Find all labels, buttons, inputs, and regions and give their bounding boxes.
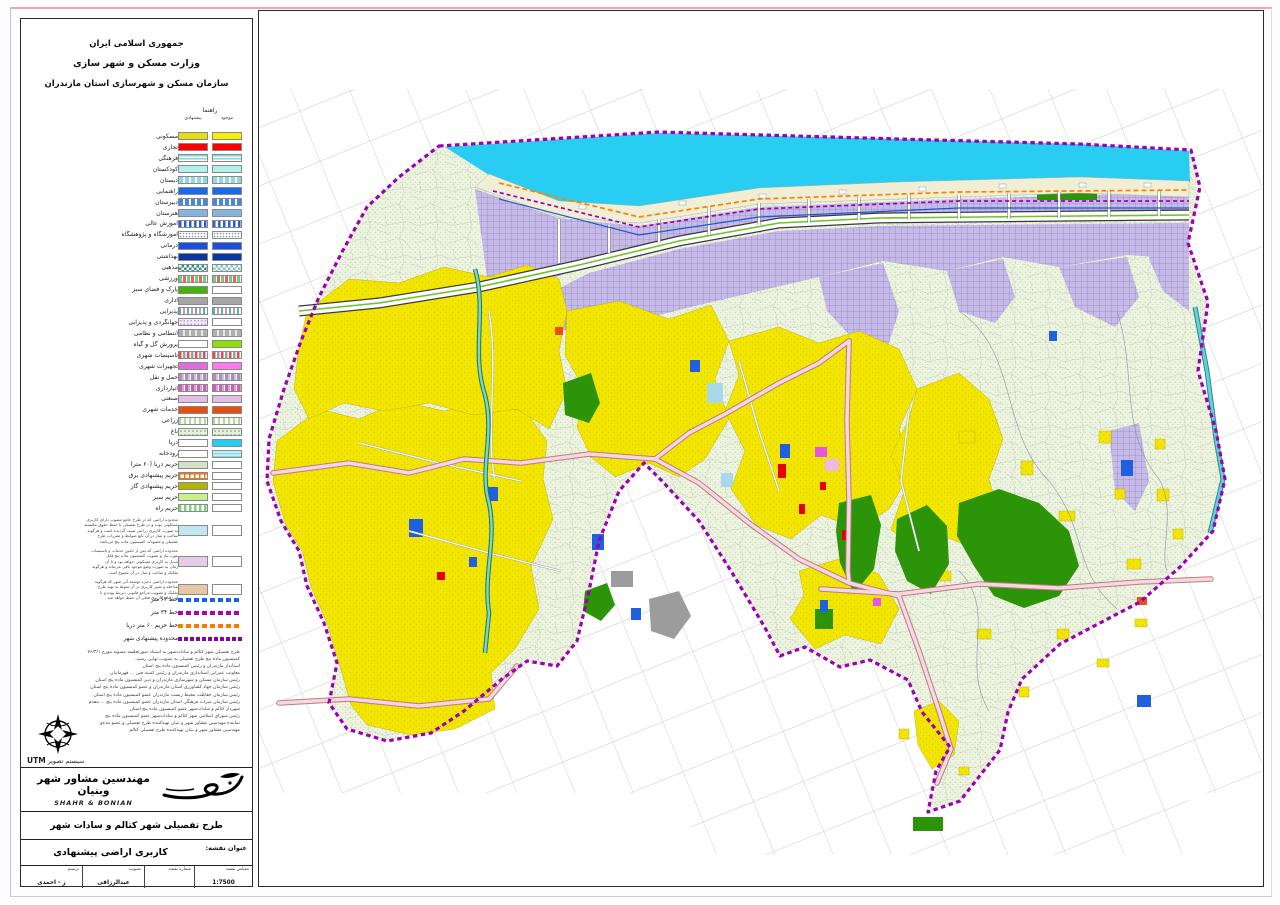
legend-row: مذهبی <box>29 262 242 273</box>
legend-row: تجاری <box>29 142 242 153</box>
info-panel: جمهوری اسلامی ایران وزارت مسکن و شهر ساز… <box>20 18 253 887</box>
legend-label: آموزشگاه و پژوهشگاه <box>29 231 178 238</box>
title-block-cell: تصویبعبدالرزاقی <box>82 866 144 888</box>
legend-label: کودکستان <box>29 166 178 173</box>
firm-names: مهندسین مشاور شهر وبنیان SHAHR & BONIAN <box>27 773 160 807</box>
approval-note-line: شهردار کتالم و سادات‌شهر عضو کمیسیون ماد… <box>29 706 240 713</box>
title-cell-label: شماره نقشه <box>168 867 191 872</box>
legend-label: باغ <box>29 428 178 435</box>
map-panel <box>258 10 1264 887</box>
line-keys: خط ۶۳ مترخط ۳۴ مترخط حریم ۶۰ متر دریامحد… <box>29 593 242 645</box>
approval-note-line: رئیس سازمان جهاد کشاورزی استان مازندران … <box>29 684 240 691</box>
legend-swatch-existing <box>212 340 242 348</box>
title-cell-value: ز - احمدی <box>21 880 82 886</box>
legend-label: حریم راه <box>29 505 178 512</box>
legend-label: ورزشی <box>29 275 178 282</box>
title-cell-value: عبدالرزاقی <box>83 880 144 886</box>
legend-swatch-existing <box>212 318 242 326</box>
legend-label: اداری <box>29 297 178 304</box>
legend-swatch-proposed <box>178 504 208 512</box>
projection-value: UTM <box>27 756 46 765</box>
legend-row: کودکستان <box>29 164 242 175</box>
legend-swatch-proposed <box>178 198 208 206</box>
legend-row: حریم راه <box>29 503 242 514</box>
legend-label: فرهنگی <box>29 155 178 162</box>
title-block-cell: ترسیمز - احمدی <box>21 866 82 888</box>
legend-row: حریم پیشنهادی گاز <box>29 481 242 492</box>
legend-swatch-proposed <box>178 132 208 140</box>
legend-swatch-proposed <box>178 264 208 272</box>
legend-swatch-proposed <box>178 275 208 283</box>
legend-label: حریم پیشنهادی برق <box>29 472 178 479</box>
line-key-sample <box>178 624 242 628</box>
legend-swatch-existing <box>212 461 242 469</box>
legend-swatch-proposed <box>178 406 208 414</box>
legend-label: حریم پیشنهادی گاز <box>29 483 178 490</box>
legend-label: آموزش عالی <box>29 220 178 227</box>
legend-swatch-proposed <box>178 187 208 195</box>
legend-row: رودخانه <box>29 448 242 459</box>
legend-swatch-proposed <box>178 209 208 217</box>
legend-swatch-existing <box>212 362 242 370</box>
approval-note-line: استاندار مازندران و رئیس کمیسیون ماده پن… <box>29 663 240 670</box>
legend-label: جهانگردی و پذیرایی <box>29 319 178 326</box>
legend-swatch-existing <box>212 329 242 337</box>
legend-swatch-proposed <box>178 220 208 228</box>
legend-header: راهنما پیشنهادی موجود <box>178 107 242 121</box>
line-key-label: محدوده پیشنهادی شهر <box>29 636 178 642</box>
title-block-cell: مقیاس نقشه1:7500 <box>194 866 252 888</box>
legend-note-swatch <box>178 556 208 567</box>
line-key-row: خط حریم ۶۰ متر دریا <box>29 619 242 632</box>
legend-row: پذیرایی <box>29 306 242 317</box>
legend-swatch-existing <box>212 417 242 425</box>
legend-label: صنعتی <box>29 395 178 402</box>
line-key-sample <box>178 611 242 615</box>
legend-swatch-existing <box>212 143 242 151</box>
legend-label: مذهبی <box>29 264 178 271</box>
map-title-label: عنوان نقشه: <box>206 844 247 852</box>
legend-row: آموزش عالی <box>29 219 242 230</box>
legend-swatch-proposed <box>178 362 208 370</box>
legend-row: حریم پیشنهادی برق <box>29 470 242 481</box>
legend-swatch-existing <box>212 242 242 250</box>
firm-logo <box>160 769 246 811</box>
legend-label: مسکونی <box>29 133 178 140</box>
legend-row: حمل و نقل <box>29 372 242 383</box>
legend-label: تاسیسات شهری <box>29 352 178 359</box>
legend-swatch-existing <box>212 187 242 195</box>
map-sheet <box>259 11 1262 885</box>
legend-label: حریم سبز <box>29 494 178 501</box>
legend-note-row: محدوده اراضی که پس از تامین خدمات و تاسی… <box>29 548 242 575</box>
title-cell-label: تصویب <box>128 867 141 872</box>
approval-note-line: معاونت عمرانی استانداری مازندران و رئیس … <box>29 670 240 677</box>
legend-row: حریم سبز <box>29 492 242 503</box>
legend-swatch-proposed <box>178 439 208 447</box>
legend-label: دبیرستان <box>29 199 178 206</box>
legend-swatch-existing <box>212 132 242 140</box>
org-line-ministry: وزارت مسکن و شهر سازی <box>27 58 246 69</box>
title-cell-label: مقیاس نقشه <box>226 867 249 872</box>
legend-swatch-proposed <box>178 351 208 359</box>
legend-row: اداری <box>29 295 242 306</box>
legend-row: ورزشی <box>29 273 242 284</box>
legend-col-existing: موجود <box>212 116 242 121</box>
legend-swatch-proposed <box>178 307 208 315</box>
title-cells: مقیاس نقشه1:7500شماره نقشهتصویبعبدالرزاق… <box>21 865 252 888</box>
legend-swatch-proposed <box>178 493 208 501</box>
line-key-row: محدوده پیشنهادی شهر <box>29 632 242 645</box>
legend-notes: محدوده اراضی که در طرح جامع مصوب دارای ک… <box>29 517 242 605</box>
legend-swatch-proposed <box>178 417 208 425</box>
legend-note-swatch-blank <box>212 556 242 567</box>
legend-swatch-proposed <box>178 231 208 239</box>
legend-swatch-existing <box>212 406 242 414</box>
legend-label: رودخانه <box>29 450 178 457</box>
legend-row: آموزشگاه و پژوهشگاه <box>29 229 242 240</box>
legend-row: زراعی <box>29 415 242 426</box>
legend-row: مسکونی <box>29 131 242 142</box>
legend-row: تجهیزات شهری <box>29 361 242 372</box>
legend-swatch-proposed <box>178 482 208 490</box>
project-title: طرح تفصیلی شهر کتالم و سادات شهر <box>21 811 252 839</box>
approval-note-line: رئیس سازمان حفاظت محیط زیست مازندران عضو… <box>29 692 240 699</box>
legend-label: پذیرایی <box>29 308 178 315</box>
org-header: جمهوری اسلامی ایران وزارت مسکن و شهر ساز… <box>27 39 246 89</box>
legend-swatch-proposed <box>178 143 208 151</box>
legend-swatch-existing <box>212 450 242 458</box>
legend-swatch-existing <box>212 373 242 381</box>
legend-swatch-existing <box>212 165 242 173</box>
legend-swatch-existing <box>212 220 242 228</box>
legend-row: خدمات شهری <box>29 404 242 415</box>
legend-swatch-proposed <box>178 297 208 305</box>
line-key-label: خط ۳۴ متر <box>29 610 178 616</box>
legend-row: فرهنگی <box>29 153 242 164</box>
legend-swatch-existing <box>212 384 242 392</box>
line-key-sample <box>178 598 242 602</box>
legend-note-row: محدوده اراضی که در طرح جامع مصوب دارای ک… <box>29 517 242 544</box>
line-key-sample <box>178 637 242 641</box>
org-line-organization: سازمان مسکن و شهرسازی استان مازندران <box>27 79 246 89</box>
legend-note-text: محدوده اراضی که پس از تامین خدمات و تاسی… <box>29 548 178 575</box>
legend-label: دبستان <box>29 177 178 184</box>
legend-swatch-proposed <box>178 384 208 392</box>
approval-note-line: رئیس سازمان میراث فرهنگی استان مازندران … <box>29 699 240 706</box>
line-key-row: خط ۳۴ متر <box>29 606 242 619</box>
legend-label: راهنمایی <box>29 188 178 195</box>
line-key-label: خط حریم ۶۰ متر دریا <box>29 623 178 629</box>
legend-swatch-proposed <box>178 395 208 403</box>
legend-row: جهانگردی و پذیرایی <box>29 317 242 328</box>
line-key-row: خط ۶۳ متر <box>29 593 242 606</box>
legend-row: دبیرستان <box>29 197 242 208</box>
legend-label: انبارداری <box>29 385 178 392</box>
legend-swatch-existing <box>212 154 242 162</box>
firm-name-en: SHAHR & BONIAN <box>27 799 160 807</box>
legend-label: پارک و فضای سبز <box>29 286 178 293</box>
legend-label: بهداشتی <box>29 253 178 260</box>
legend-title: راهنما <box>178 107 242 114</box>
legend-row: انبارداری <box>29 383 242 394</box>
legend-swatch-existing <box>212 231 242 239</box>
org-line-country: جمهوری اسلامی ایران <box>27 39 246 49</box>
legend-swatch-proposed <box>178 329 208 337</box>
legend-swatch-proposed <box>178 176 208 184</box>
legend-swatch-existing <box>212 493 242 501</box>
legend-label: خدمات شهری <box>29 406 178 413</box>
legend-swatch-existing <box>212 176 242 184</box>
legend-label: حریم دریا (۶۰ متر) <box>29 461 178 468</box>
title-cell-value: 1:7500 <box>195 880 252 886</box>
legend-swatch-existing <box>212 286 242 294</box>
legend-row: حریم دریا (۶۰ متر) <box>29 459 242 470</box>
legend-label: پرورش گل و گیاه <box>29 341 178 348</box>
legend-note-swatch <box>178 525 208 536</box>
legend-items: مسکونیتجاریفرهنگیکودکستاندبستانراهنمایید… <box>29 131 242 514</box>
map-title-row: عنوان نقشه: کاربری اراضی پیشنهادی <box>21 839 252 865</box>
legend-row: درمانی <box>29 240 242 251</box>
title-block-cell: شماره نقشه <box>144 866 194 888</box>
legend-swatch-existing <box>212 428 242 436</box>
legend-swatch-existing <box>212 395 242 403</box>
legend-label: انتظامی و نظامی <box>29 330 178 337</box>
legend-label: دریا <box>29 439 178 446</box>
legend-label: زراعی <box>29 417 178 424</box>
legend-row: بهداشتی <box>29 251 242 262</box>
legend-row: دبستان <box>29 175 242 186</box>
legend-swatch-existing <box>212 504 242 512</box>
legend-swatch-existing <box>212 198 242 206</box>
legend-swatch-existing <box>212 297 242 305</box>
legend-row: انتظامی و نظامی <box>29 328 242 339</box>
legend-swatch-proposed <box>178 154 208 162</box>
legend-swatch-proposed <box>178 461 208 469</box>
legend-row: دریا <box>29 437 242 448</box>
legend-swatch-existing <box>212 253 242 261</box>
legend-swatch-proposed <box>178 428 208 436</box>
legend-label: تجاری <box>29 144 178 151</box>
legend-label: تجهیزات شهری <box>29 363 178 370</box>
legend-swatch-existing <box>212 482 242 490</box>
legend-swatch-existing <box>212 307 242 315</box>
projection-label: سیستم تصویر UTM <box>27 756 123 765</box>
legend-swatch-proposed <box>178 242 208 250</box>
legend-swatch-proposed <box>178 253 208 261</box>
legend-note-text: محدوده اراضی که در طرح جامع مصوب دارای ک… <box>29 517 178 544</box>
legend-swatch-proposed <box>178 373 208 381</box>
legend-swatch-existing <box>212 275 242 283</box>
legend-row: صنعتی <box>29 394 242 405</box>
title-cell-label: ترسیم <box>68 867 79 872</box>
legend-row: پرورش گل و گیاه <box>29 339 242 350</box>
legend-swatch-proposed <box>178 165 208 173</box>
legend-swatch-proposed <box>178 450 208 458</box>
map-title-value: کاربری اراضی پیشنهادی <box>21 847 200 858</box>
legend-swatch-proposed <box>178 318 208 326</box>
legend-swatch-existing <box>212 351 242 359</box>
projection-text: سیستم تصویر <box>48 758 85 765</box>
legend-row: باغ <box>29 426 242 437</box>
legend-row: پارک و فضای سبز <box>29 284 242 295</box>
legend-row: هنرستان <box>29 208 242 219</box>
legend-swatch-proposed <box>178 286 208 294</box>
approval-note-line: طرح تفصیلی شهر کتالم و سادات‌شهر به استن… <box>29 649 240 656</box>
legend-swatch-existing <box>212 439 242 447</box>
legend-label: درمانی <box>29 242 178 249</box>
legend-row: راهنمایی <box>29 186 242 197</box>
legend-swatch-existing <box>212 264 242 272</box>
legend-swatch-proposed <box>178 472 208 480</box>
line-key-label: خط ۶۳ متر <box>29 597 178 603</box>
legend-swatch-existing <box>212 209 242 217</box>
legend-row: تاسیسات شهری <box>29 350 242 361</box>
legend-swatch-existing <box>212 472 242 480</box>
approval-note-line: رئیس سازمان مسکن و شهرسازی مازندران و دب… <box>29 677 240 684</box>
legend-swatch-proposed <box>178 340 208 348</box>
legend-label: حمل و نقل <box>29 374 178 381</box>
legend-label: هنرستان <box>29 210 178 217</box>
legend-note-swatch-blank <box>212 525 242 536</box>
compass-icon <box>37 713 79 759</box>
firm-name-fa: مهندسین مشاور شهر وبنیان <box>27 773 160 797</box>
approval-note-line: کمیسیون ماده پنج طرح تفصیلی به تصویب نها… <box>29 656 240 663</box>
firm-block: مهندسین مشاور شهر وبنیان SHAHR & BONIAN <box>21 767 252 811</box>
legend-col-proposed: پیشنهادی <box>178 116 208 121</box>
